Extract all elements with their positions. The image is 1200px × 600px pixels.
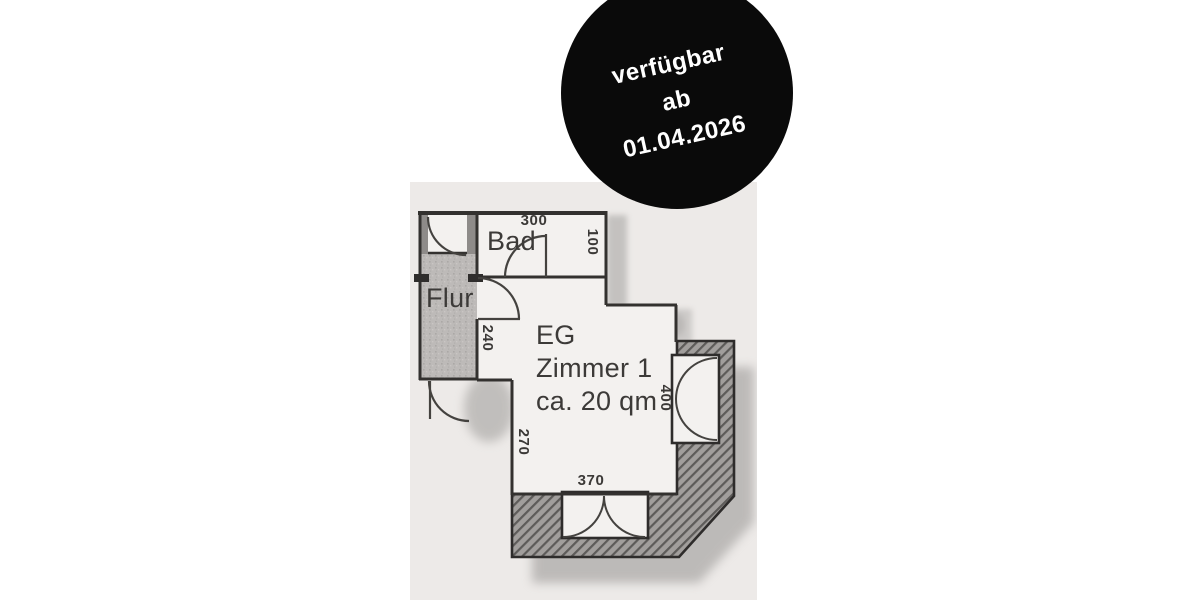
bathroom-label: Bad <box>487 226 536 256</box>
floor-line: EG <box>536 320 657 353</box>
pencil-shading <box>464 374 514 442</box>
pencil-shading <box>676 309 692 343</box>
hallway-floor <box>419 252 477 380</box>
window-bottom <box>562 492 648 538</box>
dimension-left-240: 240 <box>479 316 495 360</box>
area-line: ca. 20 qm <box>536 386 657 419</box>
dimension-top-300: 300 <box>512 213 556 229</box>
availability-badge-text: verfügbar ab 01.04.2026 <box>604 32 750 167</box>
entrance-door-swing-area <box>428 214 467 254</box>
main-room-label: EG Zimmer 1 ca. 20 qm <box>536 320 657 419</box>
dimension-bottom-370: 370 <box>569 473 613 489</box>
wall-tick <box>414 274 429 282</box>
hallway-label: Flur <box>426 283 474 313</box>
room-name-line: Zimmer 1 <box>536 353 657 386</box>
pencil-shading <box>607 215 627 307</box>
screenshot-root: Bad Flur EG Zimmer 1 ca. 20 qm 300 100 2… <box>0 0 1200 600</box>
availability-badge: verfügbar ab 01.04.2026 <box>561 0 793 209</box>
dimension-right-100: 100 <box>584 220 600 264</box>
window-right <box>672 355 719 443</box>
floor-plan: Bad Flur EG Zimmer 1 ca. 20 qm 300 100 2… <box>410 182 757 600</box>
dimension-left-270: 270 <box>515 420 531 464</box>
dimension-right-400: 400 <box>657 376 673 420</box>
